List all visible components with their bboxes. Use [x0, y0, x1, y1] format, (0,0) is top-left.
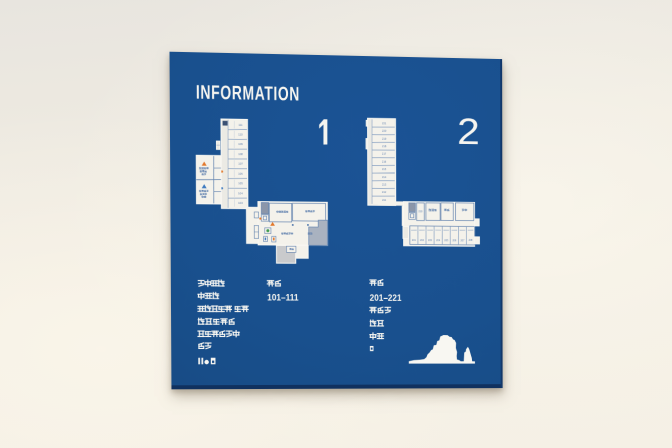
svg-text:212: 212 — [382, 190, 387, 194]
svg-text:103: 103 — [238, 201, 243, 205]
svg-text:207: 207 — [460, 239, 465, 242]
svg-text:216: 216 — [382, 160, 387, 164]
svg-text:109: 109 — [238, 142, 243, 146]
svg-text:108: 108 — [238, 152, 243, 156]
svg-text:202: 202 — [420, 239, 425, 242]
svg-text:104: 104 — [238, 191, 243, 195]
svg-text:220: 220 — [382, 129, 387, 133]
svg-text:217: 217 — [382, 152, 387, 156]
svg-text:111: 111 — [238, 123, 243, 127]
svg-text:218: 218 — [382, 144, 387, 148]
svg-text:110: 110 — [238, 132, 243, 136]
svg-text:213: 213 — [382, 183, 387, 187]
svg-text:204: 204 — [436, 239, 441, 242]
svg-text:101–111: 101–111 — [267, 292, 298, 303]
svg-text:201: 201 — [412, 239, 417, 242]
svg-text:201–221: 201–221 — [370, 292, 402, 302]
svg-text:210: 210 — [418, 210, 423, 214]
svg-text:215: 215 — [382, 167, 387, 171]
svg-text:208: 208 — [469, 239, 473, 242]
svg-text:105: 105 — [238, 181, 243, 185]
svg-text:2: 2 — [457, 110, 480, 152]
svg-text:106: 106 — [238, 172, 243, 176]
svg-text:203: 203 — [428, 239, 433, 242]
svg-text:219: 219 — [382, 137, 387, 141]
svg-text:214: 214 — [382, 175, 387, 179]
svg-text:221: 221 — [382, 121, 387, 125]
svg-text:107: 107 — [238, 162, 243, 166]
svg-text:205: 205 — [444, 239, 449, 242]
svg-text:INFORMATION: INFORMATION — [196, 80, 300, 105]
svg-text:206: 206 — [452, 239, 457, 242]
